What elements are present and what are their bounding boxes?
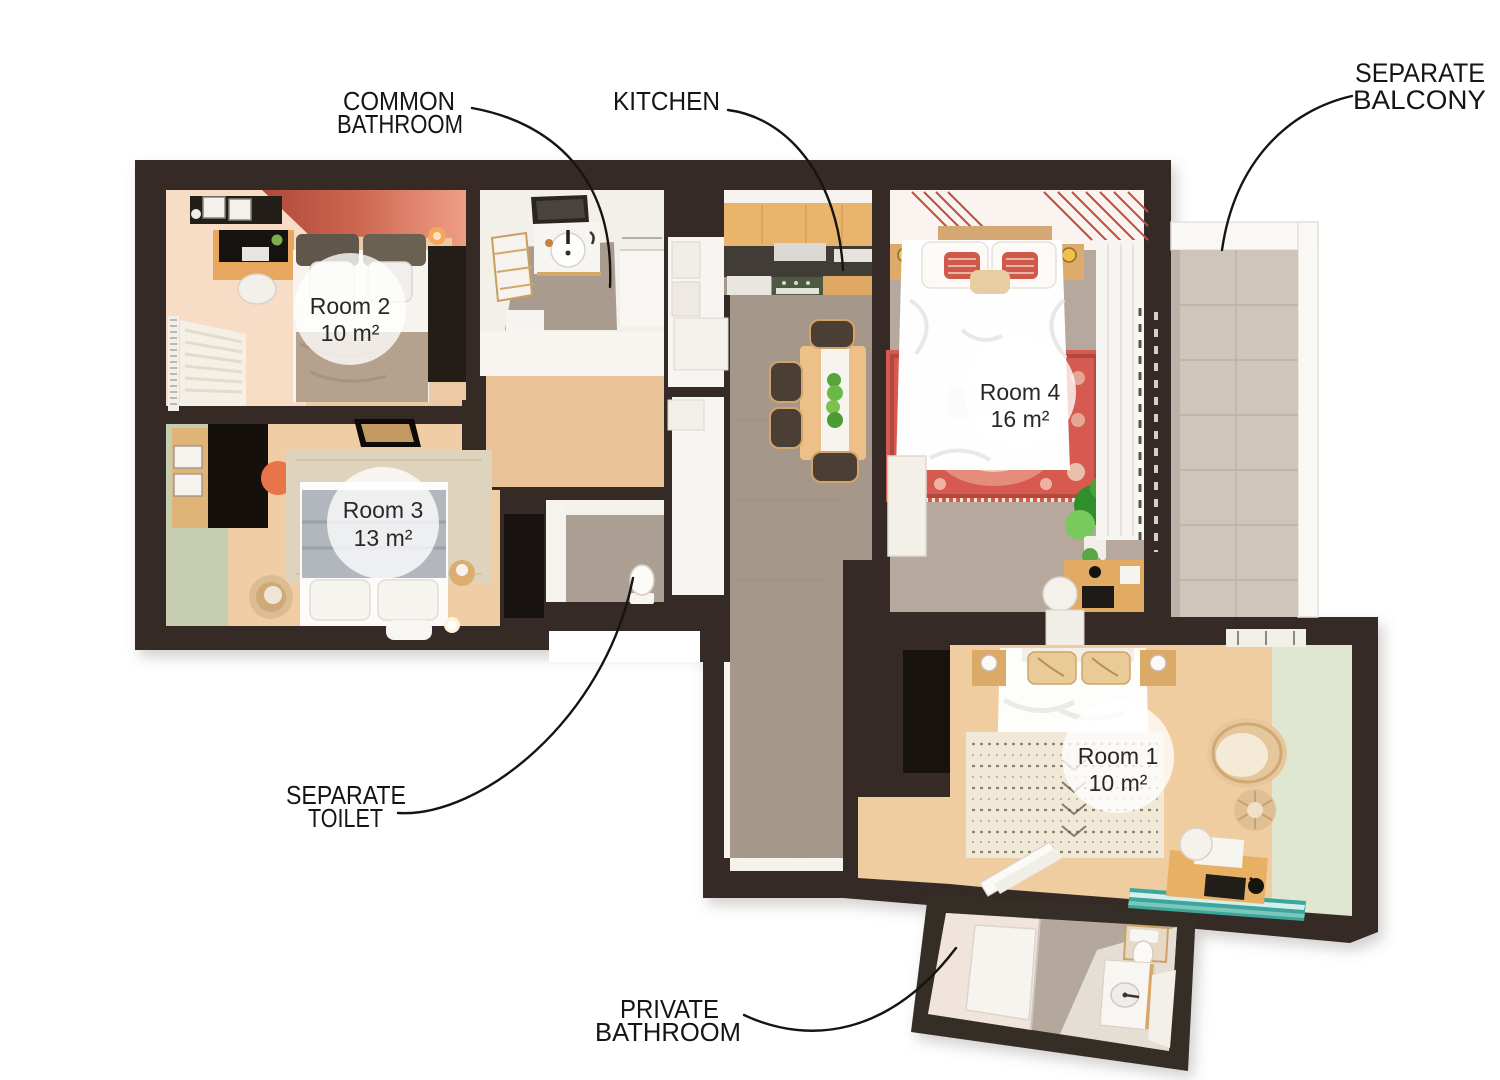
svg-text:SEPARATE: SEPARATE: [1355, 58, 1485, 88]
svg-text:BALCONY: BALCONY: [1353, 85, 1486, 115]
svg-text:13 m²: 13 m²: [354, 525, 413, 551]
svg-text:Room 1: Room 1: [1078, 743, 1159, 769]
svg-text:KITCHEN: KITCHEN: [613, 86, 720, 116]
svg-text:16 m²: 16 m²: [991, 406, 1050, 432]
svg-text:Room 3: Room 3: [343, 497, 424, 523]
svg-text:TOILET: TOILET: [308, 803, 383, 833]
svg-text:Room 4: Room 4: [980, 379, 1061, 405]
svg-text:BATHROOM: BATHROOM: [595, 1017, 741, 1047]
svg-text:Room 2: Room 2: [310, 293, 391, 319]
svg-text:BATHROOM: BATHROOM: [337, 109, 463, 139]
svg-text:10 m²: 10 m²: [1089, 770, 1148, 796]
svg-text:10 m²: 10 m²: [321, 320, 380, 346]
